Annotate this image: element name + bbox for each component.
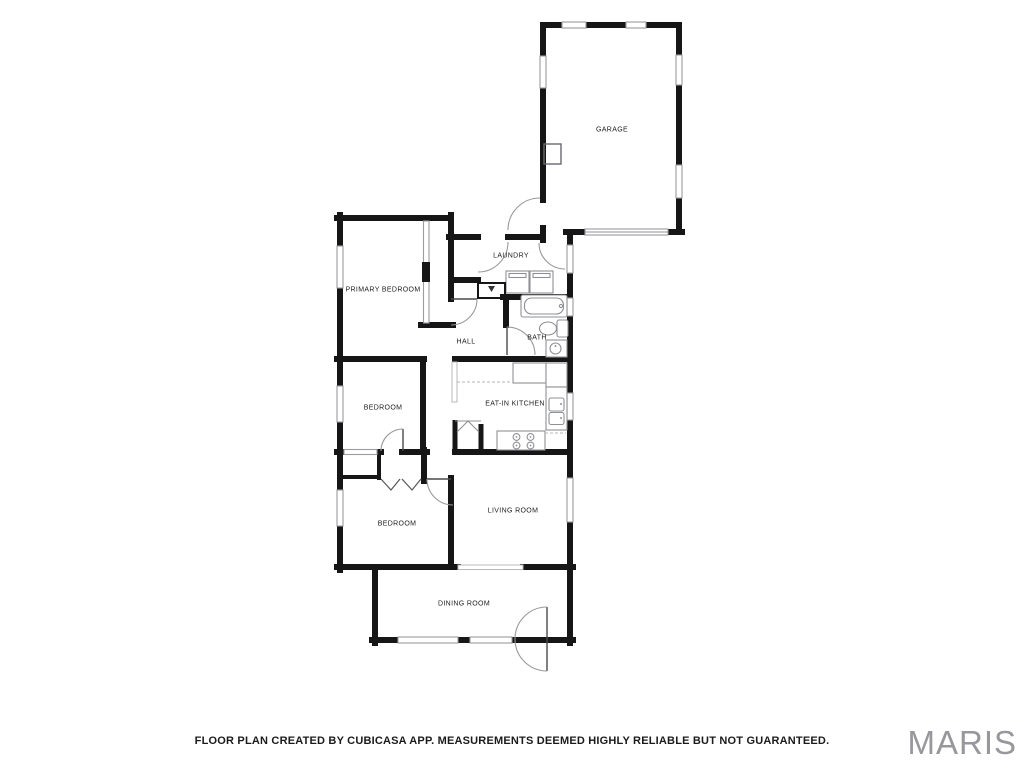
bath-sink-icon (546, 340, 567, 357)
room-label-primary-bedroom: PRIMARY BEDROOM (345, 287, 420, 294)
room-label-laundry: LAUNDRY (493, 253, 529, 260)
cased-openings (452, 362, 523, 570)
closet-bifold-icon (381, 479, 421, 490)
dryer-icon (530, 271, 553, 293)
windows (337, 22, 682, 643)
room-label-garage: GARAGE (596, 127, 628, 134)
floor-plan-drawing (0, 0, 1024, 768)
room-label-eat-in-kitchen: EAT-IN KITCHEN (485, 401, 545, 408)
room-label-dining-room: DINING ROOM (438, 601, 490, 608)
garage-door (585, 229, 668, 235)
washer-icon (506, 271, 529, 293)
pantry-bifold-icon (457, 421, 479, 432)
room-label-bath: BATH (527, 335, 547, 342)
room-label-living-room: LIVING ROOM (488, 508, 539, 515)
refrigerator-icon (546, 363, 567, 387)
closet-sliding-doors (344, 221, 430, 455)
kitchen-sink-icon (546, 387, 567, 430)
room-label-bedroom-lower: BEDROOM (378, 521, 417, 528)
bathtub-icon (521, 295, 567, 317)
footer-disclaimer: FLOOR PLAN CREATED BY CUBICASA APP. MEAS… (0, 735, 1024, 747)
room-label-bedroom-middle: BEDROOM (364, 405, 403, 412)
garage-storage-icon (544, 144, 561, 164)
room-label-hall: HALL (457, 339, 476, 346)
maris-watermark: MARIS (907, 726, 1017, 759)
floor-plan-page: GARAGE LAUNDRY PRIMARY BEDROOM HALL BATH… (0, 0, 1024, 768)
